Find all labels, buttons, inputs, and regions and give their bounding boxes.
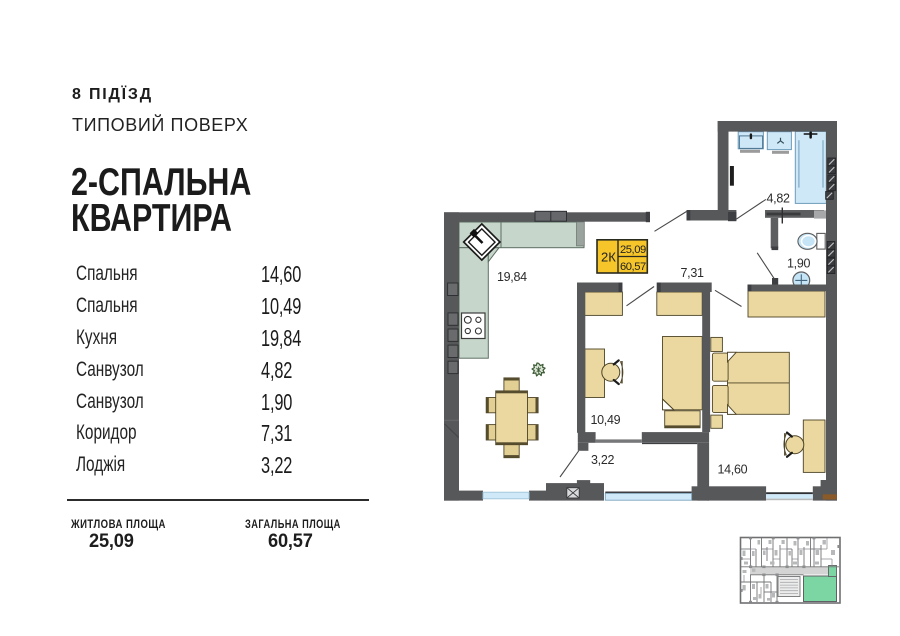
svg-text:10,49: 10,49	[591, 413, 621, 427]
svg-text:4,82: 4,82	[767, 192, 790, 206]
svg-text:14,60: 14,60	[718, 463, 748, 477]
svg-text:60,57: 60,57	[620, 261, 646, 273]
svg-text:19,84: 19,84	[497, 270, 527, 284]
svg-text:25,09: 25,09	[620, 244, 646, 256]
svg-text:1,90: 1,90	[787, 257, 810, 271]
svg-text:3,22: 3,22	[591, 453, 614, 467]
svg-text:7,31: 7,31	[681, 266, 704, 280]
svg-text:2К: 2К	[601, 250, 616, 265]
